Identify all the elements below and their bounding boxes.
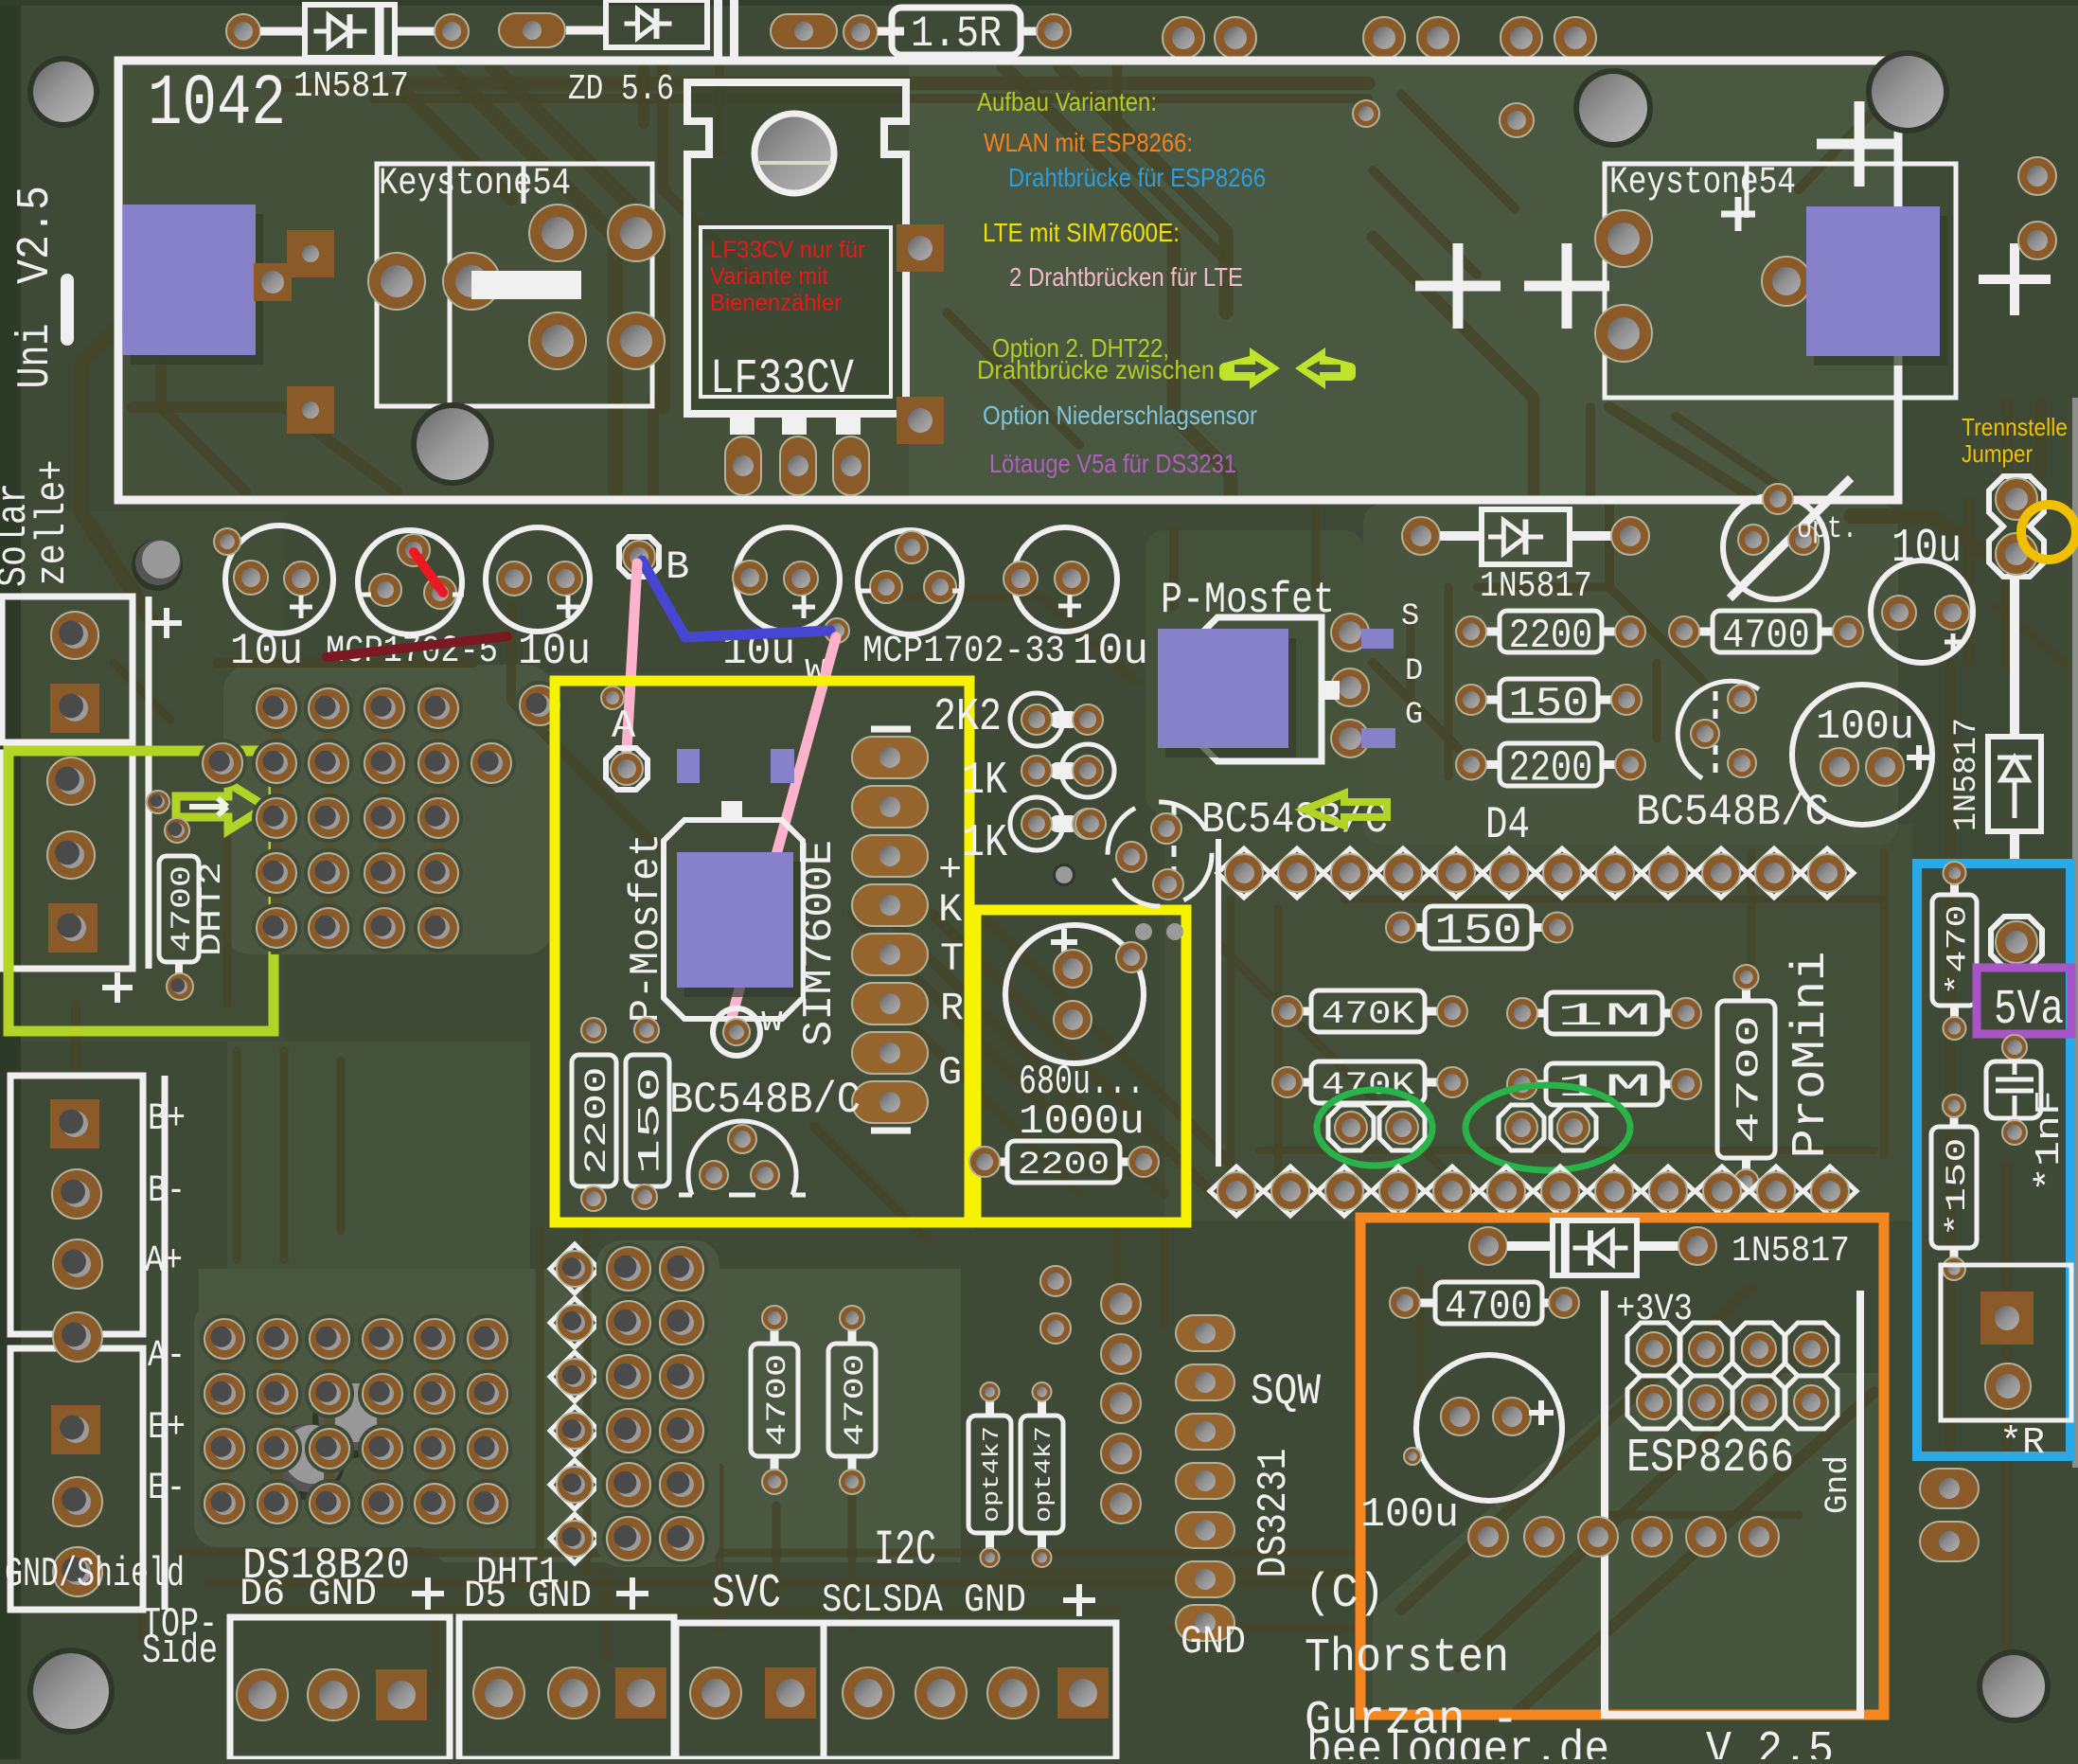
svg-text:Option Niederschlagsensor: Option Niederschlagsensor [983,401,1257,430]
svg-text:opt4k7: opt4k7 [980,1426,1005,1523]
svg-text:(C): (C) [1305,1567,1385,1621]
svg-text:2200: 2200 [1509,745,1593,793]
svg-text:4700: 4700 [1732,1015,1768,1144]
svg-text:T: T [940,936,964,982]
svg-text:D4: D4 [1485,800,1530,851]
svg-text:1M: 1M [1556,999,1652,1035]
svg-text:LF33CV nur für: LF33CV nur für [710,237,865,263]
svg-text:V 2.5: V 2.5 [1706,1724,1834,1759]
svg-text:1K: 1K [962,818,1007,869]
svg-text:V2.5: V2.5 [10,186,62,284]
svg-text:100u: 100u [1360,1491,1459,1539]
svg-text:1N5817: 1N5817 [1480,566,1592,607]
svg-text:4700: 4700 [840,1354,872,1447]
svg-text:D: D [1405,653,1423,688]
svg-text:beelogger.de: beelogger.de [1306,1724,1609,1759]
svg-text:zelle+: zelle+ [29,460,77,586]
svg-text:470K: 470K [1322,997,1415,1033]
svg-text:*1nF: *1nF [2030,1090,2069,1192]
svg-text:B: B [666,544,689,590]
svg-text:A+: A+ [145,1240,183,1283]
svg-text:LF33CV: LF33CV [710,351,854,407]
svg-text:Trennstelle: Trennstelle [1962,413,2068,441]
svg-text:4700: 4700 [1445,1284,1533,1331]
svg-text:Gnd: Gnd [1820,1455,1856,1514]
svg-text:*470: *470 [1942,905,1974,996]
svg-text:Aufbau Varianten:: Aufbau Varianten: [977,87,1157,116]
svg-text:BC548B/C: BC548B/C [669,1076,861,1125]
svg-text:E-: E- [148,1468,186,1510]
svg-text:S: S [1401,598,1419,633]
svg-text:150: 150 [633,1067,668,1175]
svg-text:150: 150 [1434,908,1522,956]
svg-text:+: + [938,847,962,893]
svg-text:I2C: I2C [874,1523,936,1578]
svg-text:Thorsten: Thorsten [1305,1631,1509,1685]
svg-text:150: 150 [1508,681,1589,728]
svg-text:ZD 5.6: ZD 5.6 [568,69,674,110]
svg-text:G: G [938,1050,962,1096]
svg-text:Drahtbrücke für ESP8266: Drahtbrücke für ESP8266 [1008,163,1266,192]
svg-text:2 Drahtbrücken für LTE: 2 Drahtbrücken für LTE [1009,262,1243,292]
svg-text:B-: B- [148,1170,186,1213]
svg-text:K: K [938,887,963,933]
svg-text:1K: 1K [962,756,1007,807]
svg-text:ESP8266: ESP8266 [1626,1432,1794,1486]
svg-text:D5 GND: D5 GND [464,1576,592,1618]
svg-text:ProMini: ProMini [1785,952,1838,1159]
svg-text:BC548B/C: BC548B/C [1636,788,1829,837]
svg-text:G: G [1405,697,1423,732]
svg-text:SCLSDA: SCLSDA [822,1577,944,1623]
svg-text:B+: B+ [148,1098,186,1141]
svg-text:Variante mit: Variante mit [710,263,828,290]
svg-text:10u: 10u [518,627,591,676]
svg-text:Side: Side [142,1628,218,1675]
svg-text:SVC: SVC [712,1567,781,1621]
svg-text:A-: A- [148,1335,186,1378]
svg-text:4700: 4700 [762,1354,794,1447]
svg-text:SIM7600E: SIM7600E [796,840,844,1046]
svg-text:10u: 10u [230,627,303,676]
svg-text:WLAN mit ESP8266:: WLAN mit ESP8266: [984,128,1193,157]
svg-text:5Va: 5Va [1994,982,2064,1038]
svg-text:R: R [940,986,964,1031]
svg-text:DHT2: DHT2 [194,862,229,956]
svg-text:LTE mit SIM7600E:: LTE mit SIM7600E: [983,218,1180,247]
svg-text:Jumper: Jumper [1962,439,2033,468]
svg-text:DS3231: DS3231 [1251,1449,1298,1578]
svg-text:opt4k7: opt4k7 [1032,1426,1057,1523]
svg-text:D6 GND: D6 GND [240,1574,377,1616]
svg-text:Drahtbrücke zwischen: Drahtbrücke zwischen [977,355,1215,384]
svg-text:1N5817: 1N5817 [293,66,409,107]
svg-text:100u: 100u [1816,704,1914,751]
svg-text:GND: GND [964,1577,1026,1623]
svg-text:GND: GND [1181,1619,1246,1665]
svg-text:1.5R: 1.5R [911,9,1002,59]
svg-text:*150: *150 [1942,1138,1974,1238]
svg-text:GND/Shield: GND/Shield [5,1551,185,1598]
svg-text:2200: 2200 [1509,613,1593,660]
svg-text:4700: 4700 [1722,613,1810,660]
svg-text:E+: E+ [148,1407,186,1450]
svg-text:opt.: opt. [1797,511,1857,546]
svg-text:2200: 2200 [1018,1148,1110,1184]
svg-text:SQW: SQW [1251,1367,1321,1417]
svg-text:1N5817: 1N5817 [1949,718,1985,831]
svg-text:1042: 1042 [148,63,286,145]
svg-text:Keystone54: Keystone54 [379,163,571,205]
svg-text:Lötauge V5a für DS3231: Lötauge V5a für DS3231 [989,449,1236,478]
svg-text:10u: 10u [1073,627,1148,676]
svg-text:1N5817: 1N5817 [1732,1231,1850,1272]
svg-text:2200: 2200 [579,1067,614,1175]
svg-text:Bienenzähler: Bienenzähler [710,290,842,316]
svg-text:MCP1702-33: MCP1702-33 [862,631,1065,673]
svg-text:*R: *R [1999,1422,2045,1465]
svg-text:w: w [761,1001,783,1042]
svg-text:Uni: Uni [10,324,62,389]
svg-text:P-Mosfet: P-Mosfet [623,833,670,1023]
svg-text:2K2: 2K2 [933,692,1002,743]
svg-text:Keystone54: Keystone54 [1609,162,1796,205]
svg-text:A: A [612,704,636,749]
